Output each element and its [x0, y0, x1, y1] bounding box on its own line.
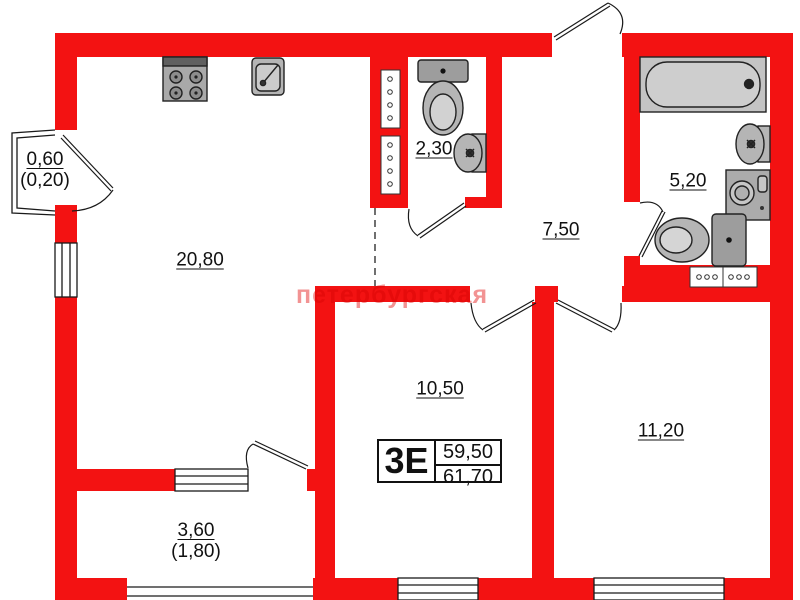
wall-segment	[55, 297, 77, 600]
unit-info-table: 3Е 59,50 61,70	[377, 439, 502, 483]
window	[594, 578, 724, 600]
wall-segment	[624, 256, 640, 302]
wall-segment	[624, 57, 640, 202]
stove-icon	[163, 57, 207, 101]
vent-hole-icon	[388, 77, 393, 82]
wc-sink-icon	[454, 134, 486, 172]
vent-hole-icon	[697, 275, 702, 280]
toilet-icon	[418, 60, 468, 135]
vent-hole-icon	[388, 182, 393, 187]
vent-hole-icon	[745, 275, 750, 280]
wall-segment	[724, 578, 793, 600]
room-label-balcony: 3,60 (1,80)	[171, 520, 221, 562]
room-label-living-kitchen: 20,80	[176, 250, 224, 271]
entrance-door	[554, 3, 623, 40]
washing-machine-icon	[726, 170, 770, 220]
fixtures	[163, 57, 770, 266]
room-label-wc: 2,30	[416, 139, 453, 160]
unit-type-label: 3Е	[379, 441, 436, 481]
window	[398, 578, 478, 600]
bathroom-toilet-icon	[655, 214, 746, 266]
wall-segment	[55, 33, 77, 130]
wall-segment	[55, 33, 552, 57]
balcony-parapet	[127, 587, 313, 596]
wall-segment	[77, 469, 175, 491]
balcony-door	[246, 441, 308, 469]
vent-hole-icon	[388, 156, 393, 161]
vent-hole-icon	[388, 169, 393, 174]
room2-door	[556, 300, 621, 332]
wall-segment	[486, 57, 502, 208]
wall-segment	[307, 469, 335, 491]
vent-hole-icon	[705, 275, 710, 280]
room-label-bathroom: 5,20	[670, 171, 707, 192]
windows	[12, 130, 724, 600]
vent-hole-icon	[737, 275, 742, 280]
kitchen-sink-icon	[252, 58, 284, 95]
vent-hole-icon	[388, 143, 393, 148]
unit-areas: 59,50 61,70	[436, 441, 500, 481]
wc-door	[408, 203, 466, 238]
wall-segment	[313, 578, 398, 600]
unit-total-area: 61,70	[436, 466, 500, 489]
vent-hole-icon	[729, 275, 734, 280]
wall-segment	[465, 197, 502, 208]
floor-plan: петербургская 20,80 2,30 7,50 5,20 10,50…	[0, 0, 800, 600]
bathtub-icon	[640, 57, 766, 112]
watermark: петербургская	[296, 281, 548, 310]
wall-segment	[478, 578, 594, 600]
wall-segment	[770, 33, 793, 600]
wall-segment	[622, 33, 793, 57]
wall-segment	[315, 286, 335, 578]
room-label-room2: 11,20	[638, 421, 684, 442]
vent-hole-icon	[713, 275, 718, 280]
window	[175, 469, 248, 491]
unit-living-area: 59,50	[436, 441, 500, 466]
wall-segment	[532, 302, 554, 578]
window	[55, 243, 77, 297]
room-label-bay: 0,60 (0,20)	[20, 149, 70, 191]
wall-segment	[55, 578, 127, 600]
vent-hole-icon	[388, 116, 393, 121]
room-label-room1: 10,50	[416, 379, 464, 400]
room-label-hall: 7,50	[543, 220, 580, 241]
vent-hole-icon	[388, 103, 393, 108]
bathroom-sink-icon	[736, 124, 770, 164]
vent-hole-icon	[388, 90, 393, 95]
